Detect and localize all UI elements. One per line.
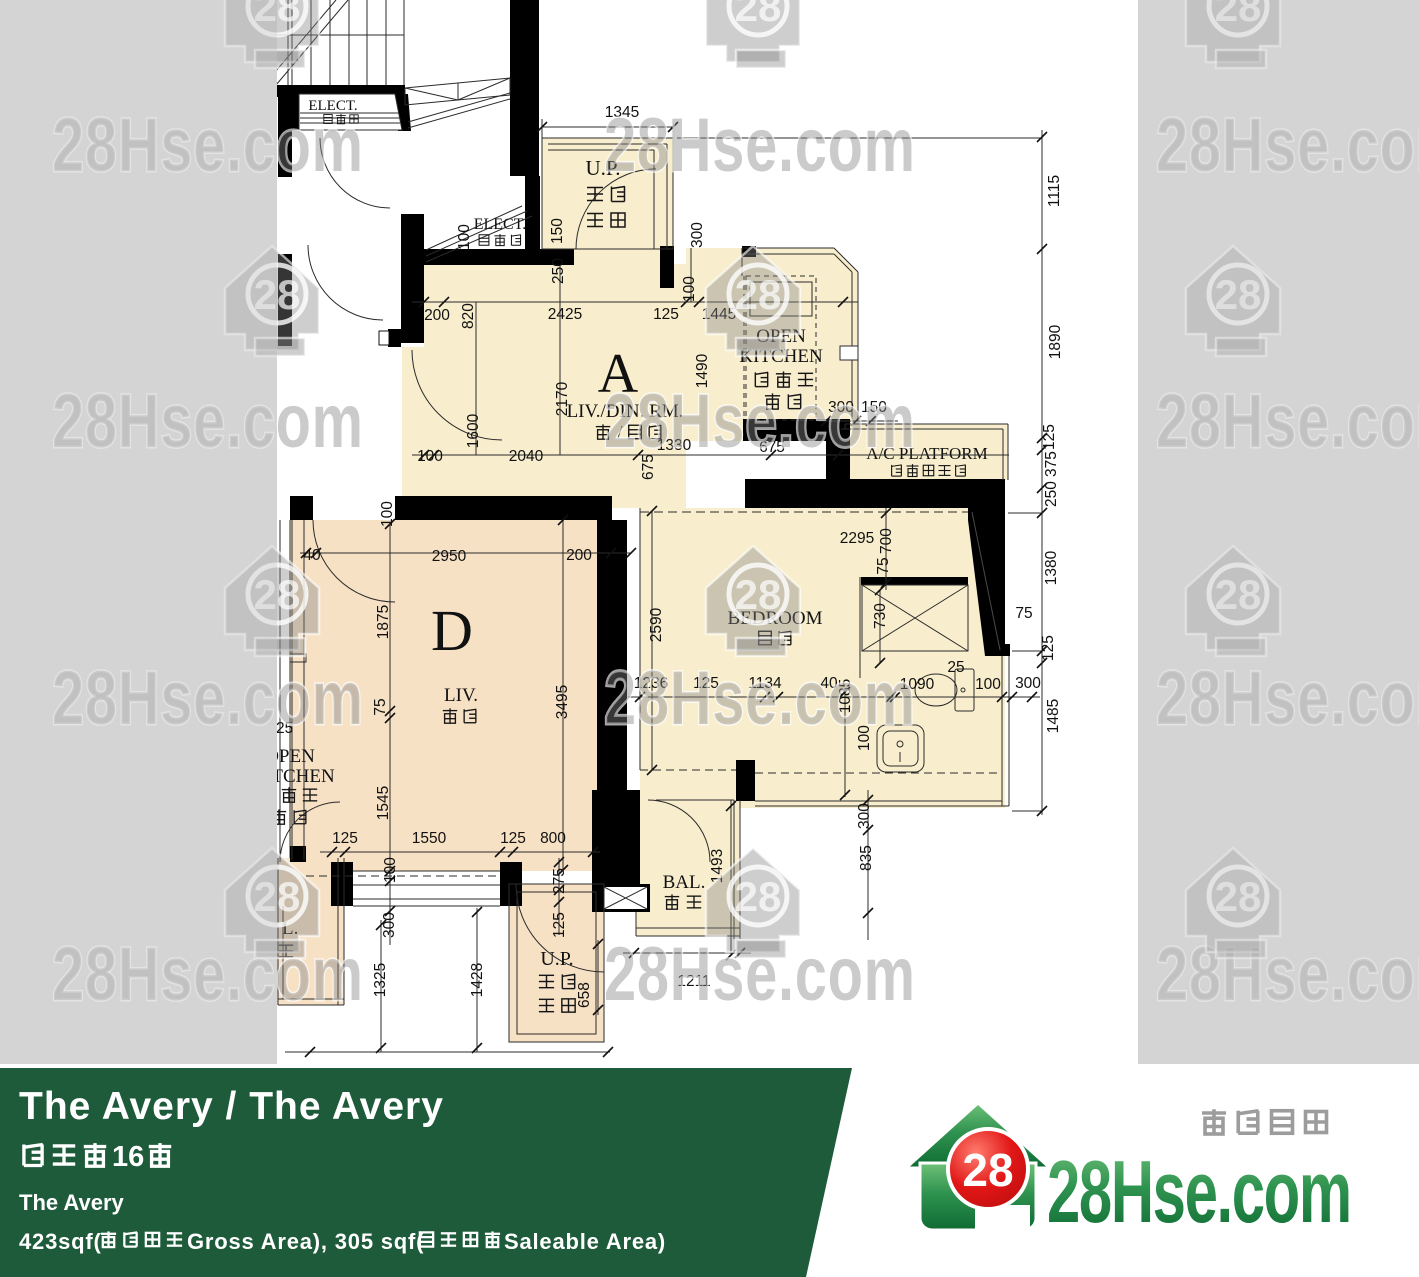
svg-text:800: 800 xyxy=(540,830,566,847)
svg-text:1545: 1545 xyxy=(375,786,392,820)
svg-text:40: 40 xyxy=(303,547,321,564)
svg-text:1875: 1875 xyxy=(375,605,392,639)
svg-text:2040: 2040 xyxy=(509,448,544,465)
svg-text:1380: 1380 xyxy=(1043,550,1060,585)
svg-text:125: 125 xyxy=(551,912,568,938)
svg-text:423sqf(: 423sqf( xyxy=(19,1229,102,1254)
svg-text:300: 300 xyxy=(856,803,873,829)
svg-text:25: 25 xyxy=(947,659,964,676)
svg-text:2590: 2590 xyxy=(648,607,665,642)
svg-text:275: 275 xyxy=(551,868,568,894)
svg-text:820: 820 xyxy=(460,303,477,329)
svg-text:835: 835 xyxy=(858,845,875,871)
svg-text:28: 28 xyxy=(962,1144,1013,1196)
svg-text:75: 75 xyxy=(1015,605,1032,622)
svg-text:658: 658 xyxy=(576,982,593,1008)
svg-text:125: 125 xyxy=(1040,635,1057,661)
svg-text:150: 150 xyxy=(549,218,566,244)
svg-text:100: 100 xyxy=(975,676,1001,693)
svg-text:125: 125 xyxy=(1041,424,1058,450)
svg-text:250: 250 xyxy=(550,258,567,284)
svg-text:2170: 2170 xyxy=(554,381,571,416)
svg-text:U.P.: U.P. xyxy=(540,948,573,970)
svg-text:1428: 1428 xyxy=(469,963,486,997)
svg-text:375: 375 xyxy=(1043,451,1060,477)
svg-text:1550: 1550 xyxy=(412,830,447,847)
svg-text:125: 125 xyxy=(653,306,679,323)
svg-text:D: D xyxy=(431,598,473,663)
svg-text:300: 300 xyxy=(689,222,706,248)
svg-text:16: 16 xyxy=(112,1141,144,1173)
svg-text:100: 100 xyxy=(382,857,399,883)
svg-text:100: 100 xyxy=(417,448,443,465)
svg-text:2295: 2295 xyxy=(840,530,874,547)
svg-text:125: 125 xyxy=(500,830,526,847)
svg-text:1485: 1485 xyxy=(1045,699,1062,733)
svg-text:1115: 1115 xyxy=(1046,175,1063,207)
svg-text:730: 730 xyxy=(872,603,889,629)
svg-text:2950: 2950 xyxy=(432,548,467,565)
svg-text:The Avery: The Avery xyxy=(19,1190,125,1215)
svg-text:3495: 3495 xyxy=(554,685,571,719)
svg-text:300: 300 xyxy=(1015,675,1041,692)
svg-text:2425: 2425 xyxy=(548,306,582,323)
svg-text:ELECT.: ELECT. xyxy=(474,216,527,233)
svg-text:28Hse.com: 28Hse.com xyxy=(1047,1142,1351,1240)
svg-text:700: 700 xyxy=(878,528,895,554)
svg-text:125: 125 xyxy=(332,830,358,847)
svg-text:Saleable Area): Saleable Area) xyxy=(504,1229,666,1254)
svg-text:250: 250 xyxy=(1043,481,1060,507)
svg-text:1600: 1600 xyxy=(465,413,482,448)
svg-text:200: 200 xyxy=(424,307,450,324)
svg-text:75: 75 xyxy=(875,557,892,574)
svg-text:100: 100 xyxy=(456,224,473,250)
svg-text:75: 75 xyxy=(372,698,389,715)
svg-text:1325: 1325 xyxy=(372,963,389,997)
svg-text:300: 300 xyxy=(381,912,398,938)
svg-text:Gross Area), 305 sqf(: Gross Area), 305 sqf( xyxy=(187,1229,424,1254)
svg-text:LIV.: LIV. xyxy=(444,685,478,706)
svg-text:100: 100 xyxy=(681,276,698,302)
svg-text:BAL.: BAL. xyxy=(663,872,706,893)
svg-text:The Avery / The Avery: The Avery / The Avery xyxy=(19,1085,444,1128)
svg-text:200: 200 xyxy=(566,547,592,564)
svg-text:100: 100 xyxy=(379,501,396,527)
svg-text:1890: 1890 xyxy=(1047,324,1064,359)
